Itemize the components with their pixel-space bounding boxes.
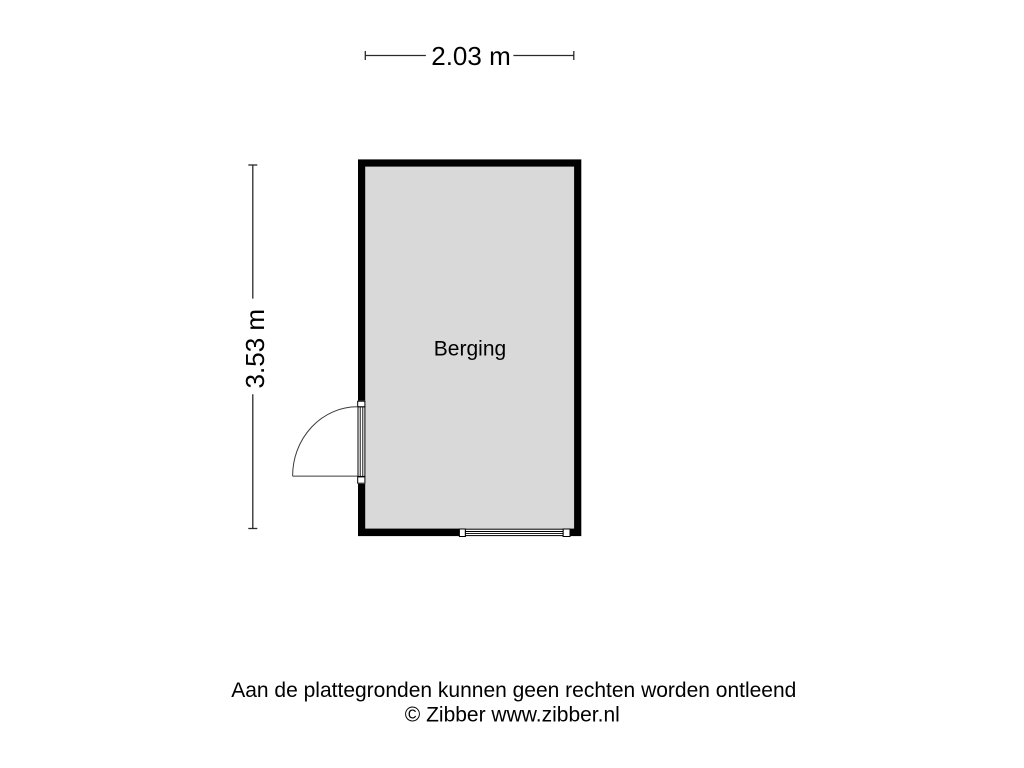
svg-text:© Zibber www.zibber.nl: © Zibber www.zibber.nl <box>405 704 620 727</box>
svg-text:Aan de plattegronden kunnen ge: Aan de plattegronden kunnen geen rechten… <box>231 679 796 702</box>
svg-text:3.53 m: 3.53 m <box>240 309 270 389</box>
svg-text:Berging: Berging <box>434 338 506 361</box>
svg-text:2.03 m: 2.03 m <box>431 41 511 71</box>
